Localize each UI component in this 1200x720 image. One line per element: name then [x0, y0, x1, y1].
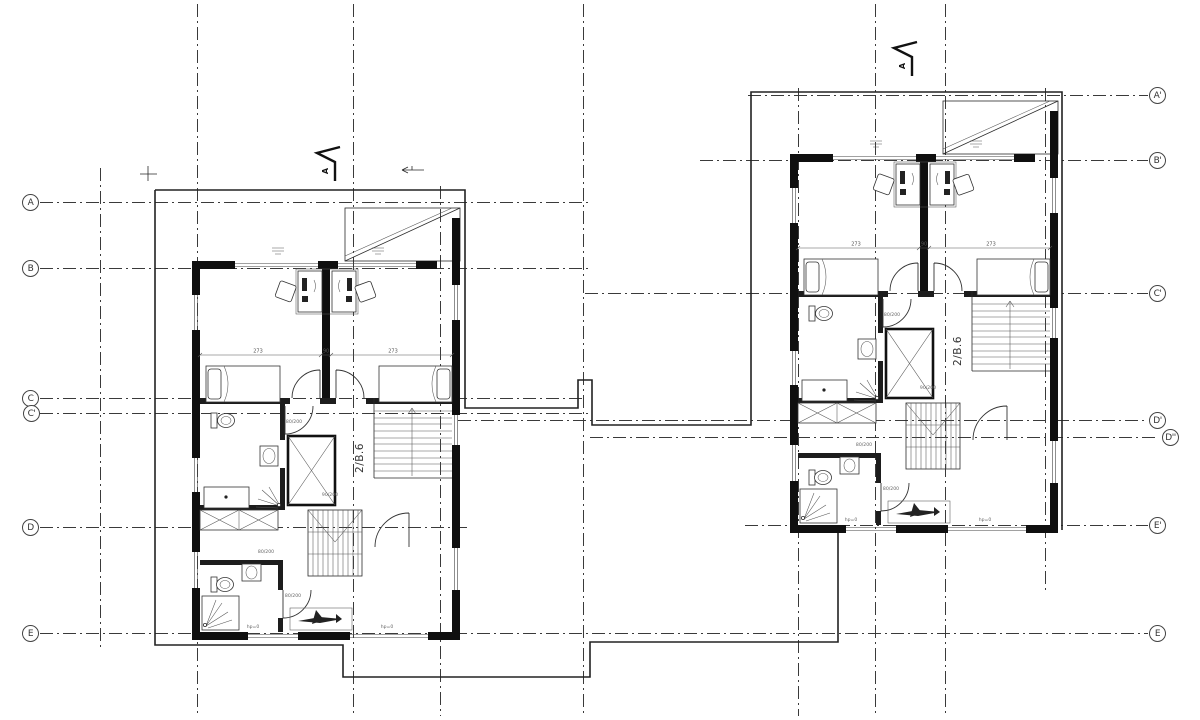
unit-label: 2/B.6 [354, 443, 366, 473]
floor-plan-canvas: A B C C' D E A' B' C' D' D'' E' E [0, 0, 1200, 720]
level-tag: hp=0 [247, 624, 260, 630]
door-tag: 80/200 [884, 312, 900, 318]
grid-bubble: E' [1149, 517, 1166, 534]
level-tag: hp=0 [979, 517, 992, 523]
dim-label: 273 [851, 242, 861, 248]
grid-bubble: A [22, 194, 39, 211]
section-marker: A [317, 147, 340, 181]
door-tag: 80/200 [285, 593, 301, 599]
grid-bubble: A' [1149, 87, 1166, 104]
grid-bubble: B' [1149, 152, 1166, 169]
plot-boundary [155, 190, 838, 677]
floor-plan-svg: A A 2/B.6 273 90 273 80/200 90/200 80/20… [0, 0, 1200, 720]
grid-bubble: D' [1149, 412, 1166, 429]
door-tag: 80/200 [883, 486, 899, 492]
level-tag: hp=0 [845, 517, 858, 523]
unit-right [790, 101, 1058, 533]
grid-bubble: C' [23, 405, 40, 422]
door-tag: 80/200 [856, 442, 872, 448]
unit-label: 2/B.6 [952, 336, 964, 366]
door-tag: 80/200 [258, 549, 274, 555]
dim-label: 273 [986, 242, 996, 248]
section-letter: A [321, 167, 330, 174]
grid-bubble: D'' [1162, 429, 1179, 446]
dim-label: 90 [921, 242, 927, 248]
door-tag: 90/200 [322, 492, 338, 498]
grid-bubble: E [1149, 625, 1166, 642]
section-marker: A [894, 42, 917, 76]
dim-label: 273 [388, 349, 398, 355]
unit-left [192, 208, 460, 640]
section-letter: A [898, 62, 907, 69]
dim-label: 90 [323, 349, 329, 355]
level-tag: hp=0 [381, 624, 394, 630]
dim-label: 273 [253, 349, 263, 355]
benchmark-mark [140, 166, 424, 181]
grid-bubble: B [22, 260, 39, 277]
door-tag: 90/200 [920, 385, 936, 391]
grid-bubble: E [22, 625, 39, 642]
grid-bubble: C' [1149, 285, 1166, 302]
door-tag: 80/200 [286, 419, 302, 425]
grid-bubble: D [22, 519, 39, 536]
